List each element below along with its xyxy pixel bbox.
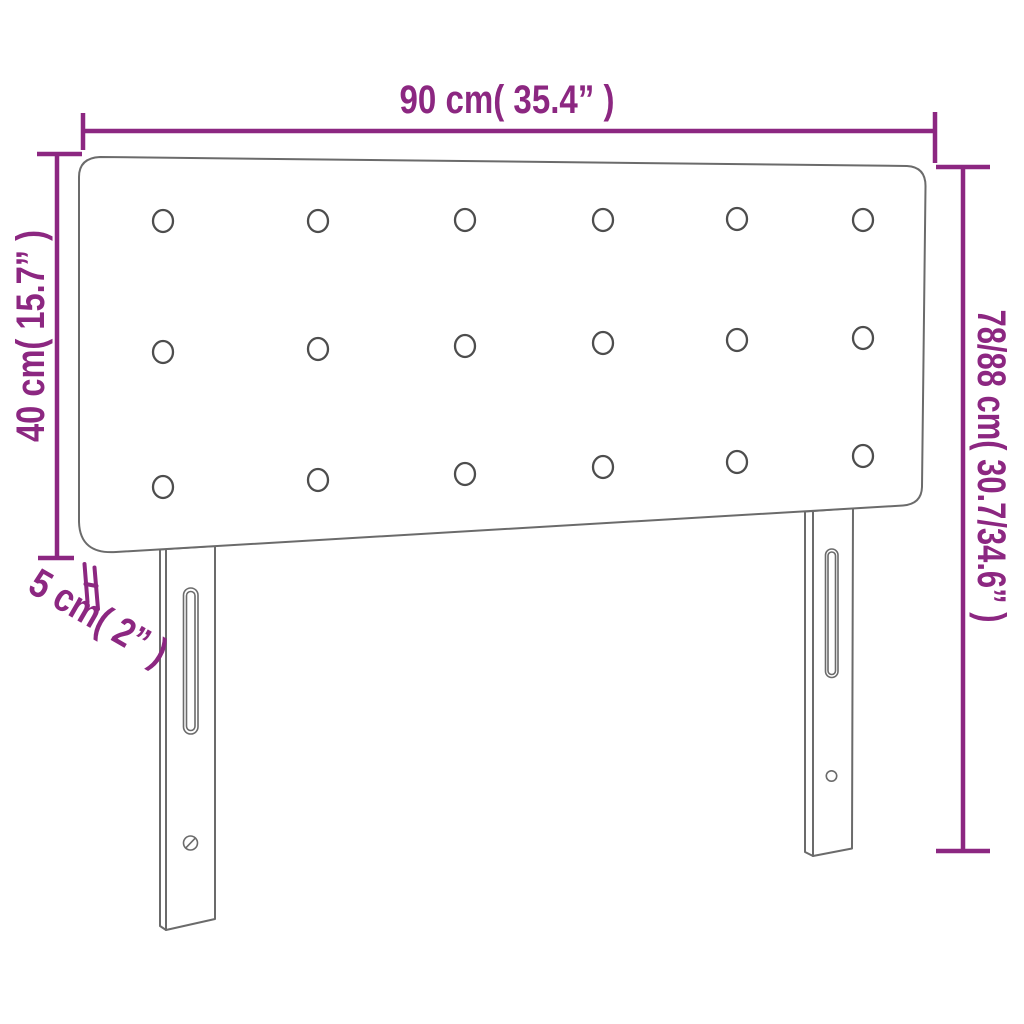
tuft-button <box>593 332 613 354</box>
tuft-button <box>153 341 173 363</box>
left-leg <box>160 546 215 930</box>
width-dimension-label: 90 cm( 35.4” ) <box>400 78 615 122</box>
tuft-button <box>455 463 475 485</box>
tuft-button <box>853 445 873 467</box>
height-left-dimension-label: 40 cm( 15.7” ) <box>9 230 53 442</box>
diagram-canvas: 90 cm( 35.4” ) 40 cm( 15.7” ) 78/88 cm( … <box>0 0 1024 1024</box>
left-leg-front-face <box>166 546 215 930</box>
thickness-dimension-label: 5 cm( 2” ) <box>22 561 176 675</box>
right-leg-front-face <box>813 508 853 856</box>
tuft-button <box>153 476 173 498</box>
tuft-button <box>308 469 328 491</box>
tuft-button <box>153 210 173 232</box>
right-leg-side-face <box>805 511 813 856</box>
height-right-dimension-label: 78/88 cm( 30.7/34.6” ) <box>969 310 1013 623</box>
tuft-button <box>727 208 747 230</box>
dimension-height-right: 78/88 cm( 30.7/34.6” ) <box>936 167 1013 851</box>
headboard-panel <box>79 157 926 552</box>
tuft-button <box>727 329 747 351</box>
dimension-thickness: 5 cm( 2” ) <box>22 561 176 675</box>
tuft-button <box>853 327 873 349</box>
dimension-width-top: 90 cm( 35.4” ) <box>83 78 935 163</box>
tuft-button <box>853 209 873 231</box>
tuft-button <box>727 451 747 473</box>
right-leg <box>805 508 853 856</box>
tuft-button <box>455 335 475 357</box>
headboard-dimension-diagram: 90 cm( 35.4” ) 40 cm( 15.7” ) 78/88 cm( … <box>0 0 1024 1024</box>
tuft-button <box>455 209 475 231</box>
tuft-button <box>308 338 328 360</box>
tuft-button <box>593 456 613 478</box>
dimension-height-left: 40 cm( 15.7” ) <box>9 154 82 558</box>
headboard-front-panel <box>79 157 926 552</box>
tuft-button <box>593 209 613 231</box>
tuft-button <box>308 210 328 232</box>
